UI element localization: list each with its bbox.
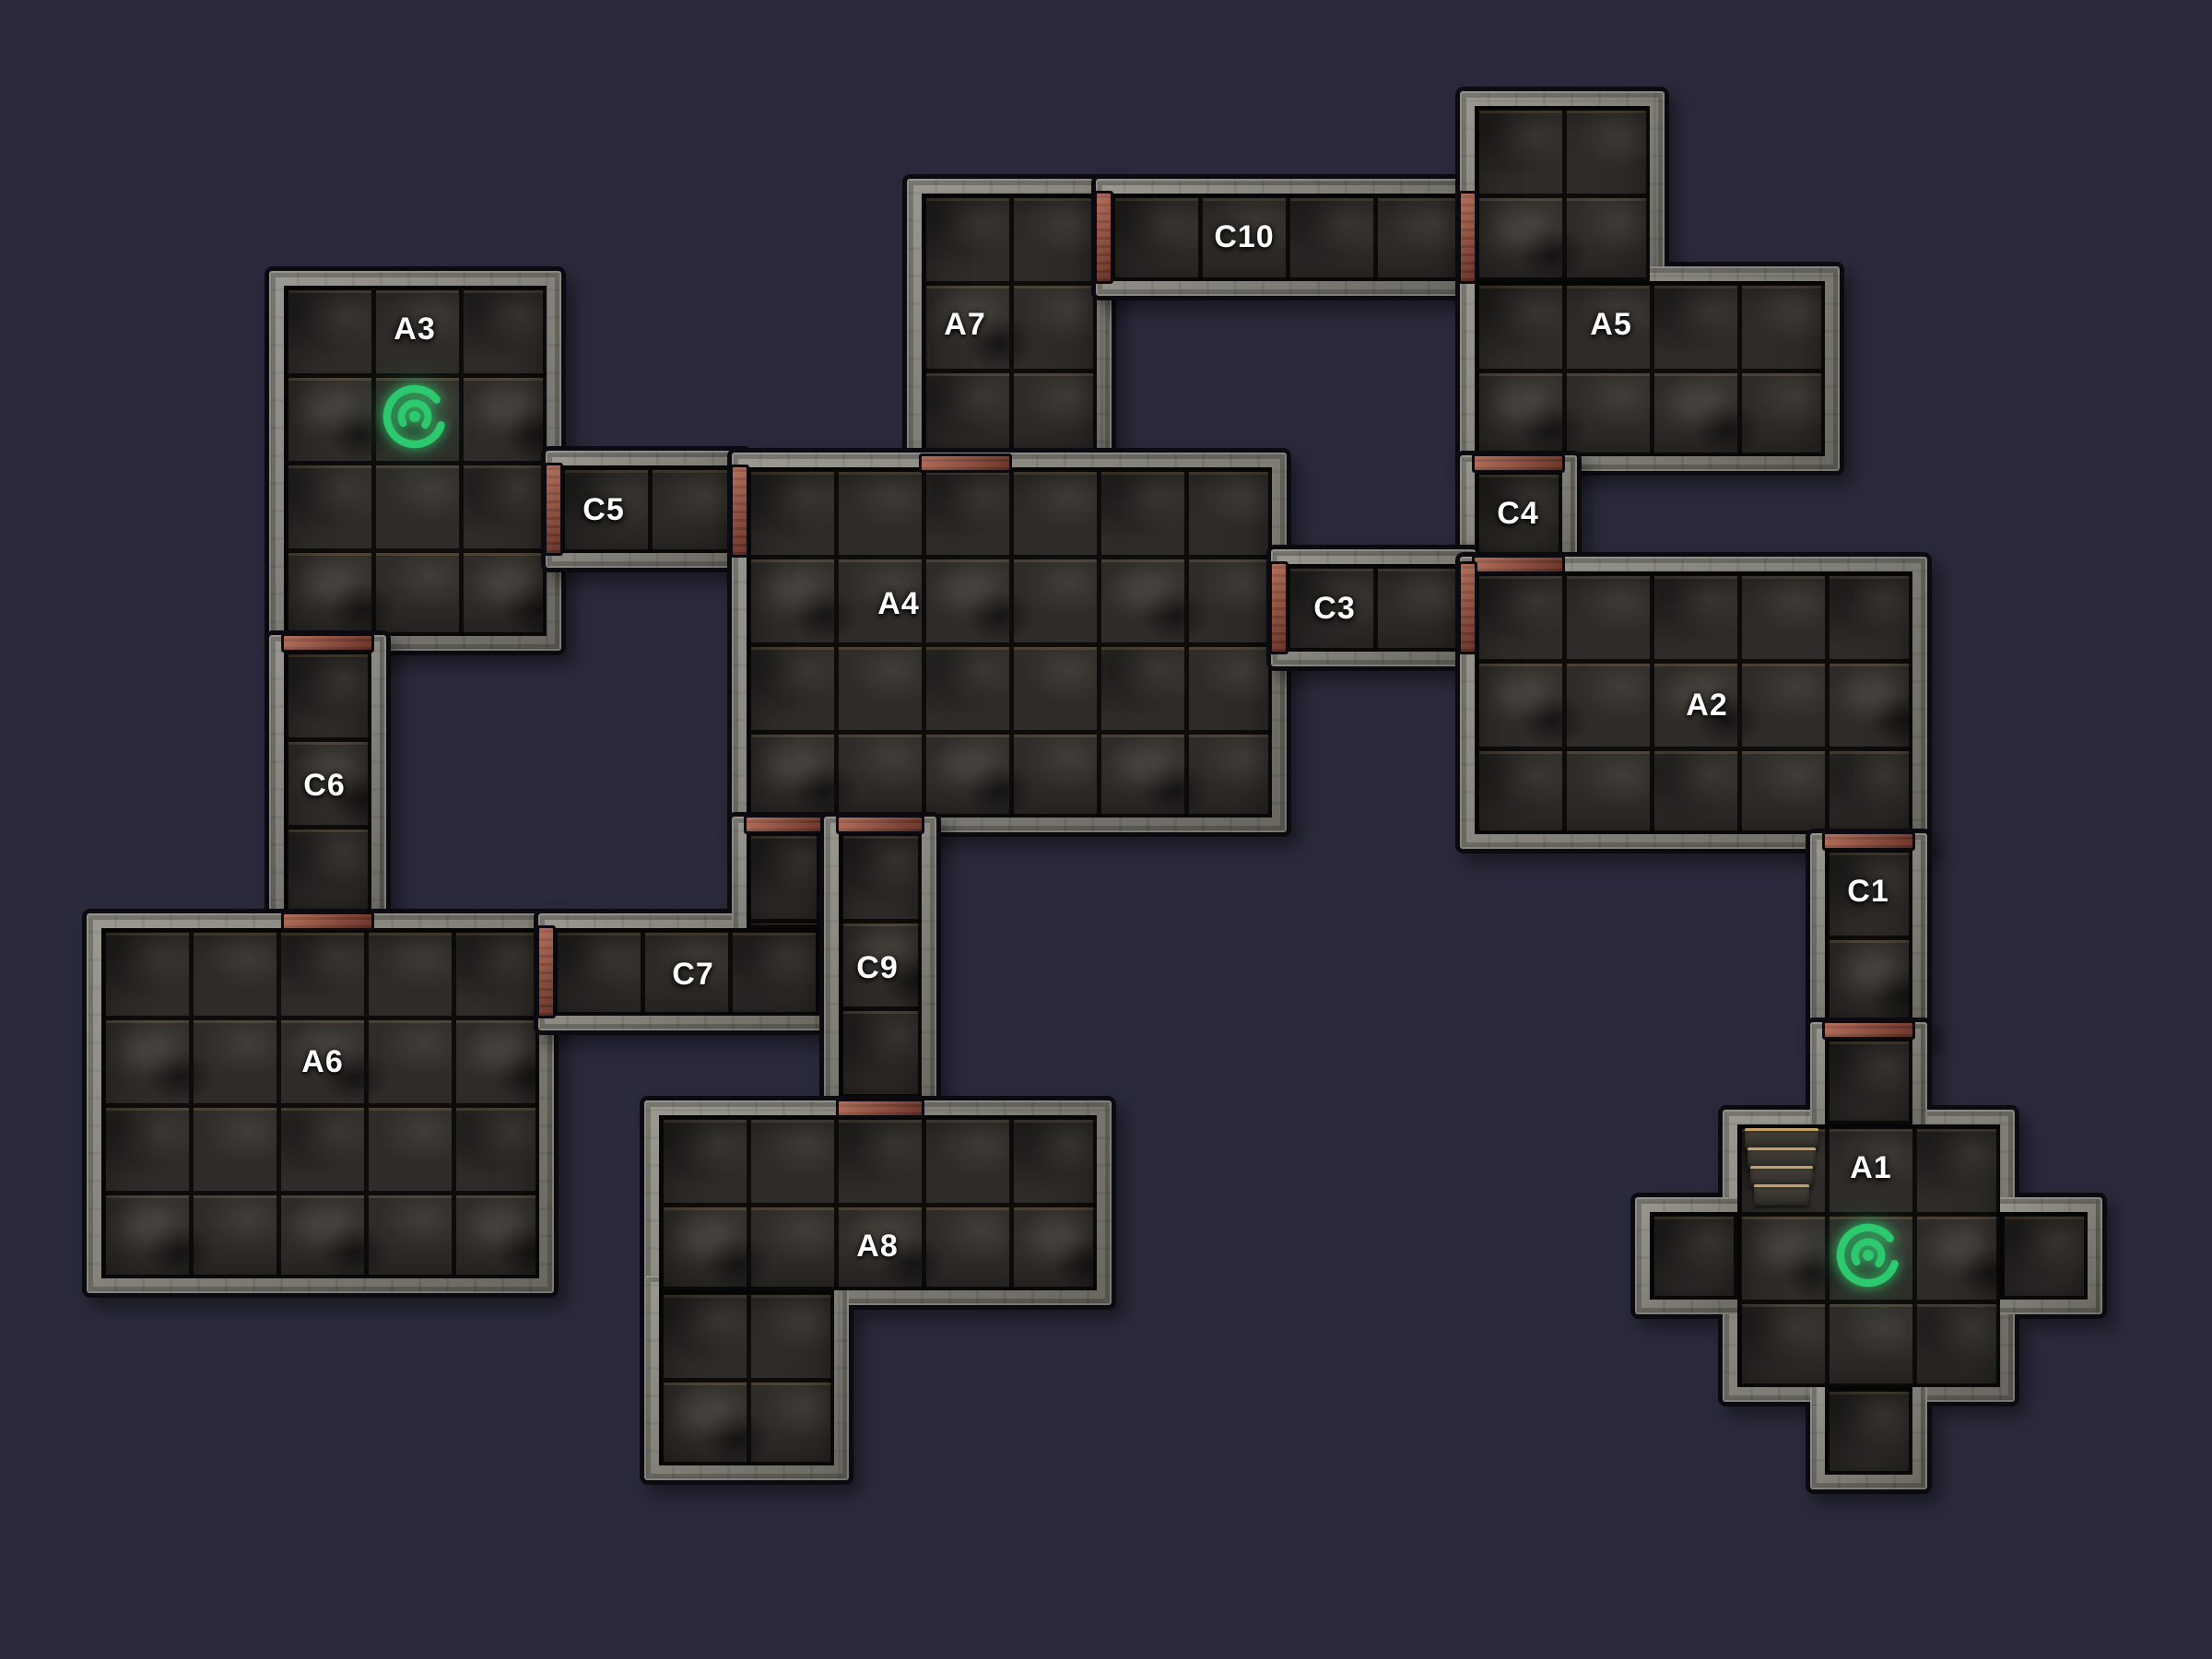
room-label-A8: A8: [856, 1230, 898, 1262]
dungeon-map: A3C5A7C10A5C4A4C3A2C1A1C6A6C7C9A8: [0, 0, 2212, 1659]
room-floor[interactable]: [1825, 1037, 1912, 1124]
spawn-spiral-icon[interactable]: [1824, 1211, 1912, 1300]
room-floor[interactable]: [747, 467, 1272, 818]
room-label-A3: A3: [394, 313, 435, 345]
corridor-label-C10: C10: [1214, 221, 1274, 253]
door-c5-a4[interactable]: [733, 467, 747, 555]
corridor-label-C3: C3: [1313, 593, 1355, 624]
door-a2-c1[interactable]: [1825, 834, 1912, 848]
room-label-A1: A1: [1850, 1152, 1891, 1183]
door-a5-c4[interactable]: [1475, 456, 1562, 470]
door-c1-a1[interactable]: [1825, 1023, 1912, 1037]
room-floor[interactable]: [659, 1115, 1097, 1290]
room-floor[interactable]: [659, 1290, 834, 1465]
room-floor[interactable]: [1475, 106, 1650, 281]
corridor-label-C6: C6: [303, 770, 345, 801]
door-c6-a6[interactable]: [284, 914, 371, 928]
room-floor[interactable]: [747, 831, 820, 928]
door-a3-c6[interactable]: [284, 636, 371, 650]
corridor-label-C1: C1: [1847, 876, 1888, 907]
stairs-step: [1750, 1166, 1813, 1186]
door-c4-a2[interactable]: [1475, 558, 1562, 571]
room-floor[interactable]: [1111, 194, 1461, 281]
room-floor[interactable]: [1825, 1387, 1912, 1475]
door-a6-c7[interactable]: [539, 928, 553, 1016]
door-c10-a5[interactable]: [1461, 194, 1475, 281]
stairs-step: [1745, 1128, 1818, 1149]
door-a7-a4[interactable]: [922, 456, 1009, 470]
room-label-A5: A5: [1590, 309, 1631, 340]
room-floor[interactable]: [1475, 281, 1825, 456]
corridor-label-C7: C7: [672, 959, 713, 990]
stairs-icon[interactable]: [1745, 1128, 1822, 1206]
door-a7-c10[interactable]: [1097, 194, 1111, 281]
door-c9-a4[interactable]: [839, 818, 922, 831]
corridor-label-C4: C4: [1497, 498, 1538, 529]
door-c9-a8[interactable]: [839, 1101, 922, 1115]
room-label-A7: A7: [944, 309, 985, 340]
room-label-A2: A2: [1686, 689, 1727, 721]
corridor-label-C5: C5: [582, 494, 624, 525]
corridor-label-C9: C9: [856, 952, 898, 983]
room-label-A4: A4: [877, 588, 919, 619]
room-floor[interactable]: [1650, 1212, 1737, 1300]
stairs-step: [1754, 1184, 1809, 1206]
door-c7-a4[interactable]: [747, 818, 820, 831]
spawn-spiral-icon[interactable]: [371, 372, 459, 461]
room-floor[interactable]: [1286, 564, 1461, 652]
room-label-A6: A6: [301, 1046, 343, 1077]
door-a4-c3[interactable]: [1272, 564, 1286, 652]
room-floor[interactable]: [2000, 1212, 2088, 1300]
door-a3-c5[interactable]: [547, 465, 560, 553]
door-c3-a2[interactable]: [1461, 564, 1475, 652]
stairs-step: [1747, 1147, 1816, 1168]
room-floor[interactable]: [101, 928, 539, 1278]
